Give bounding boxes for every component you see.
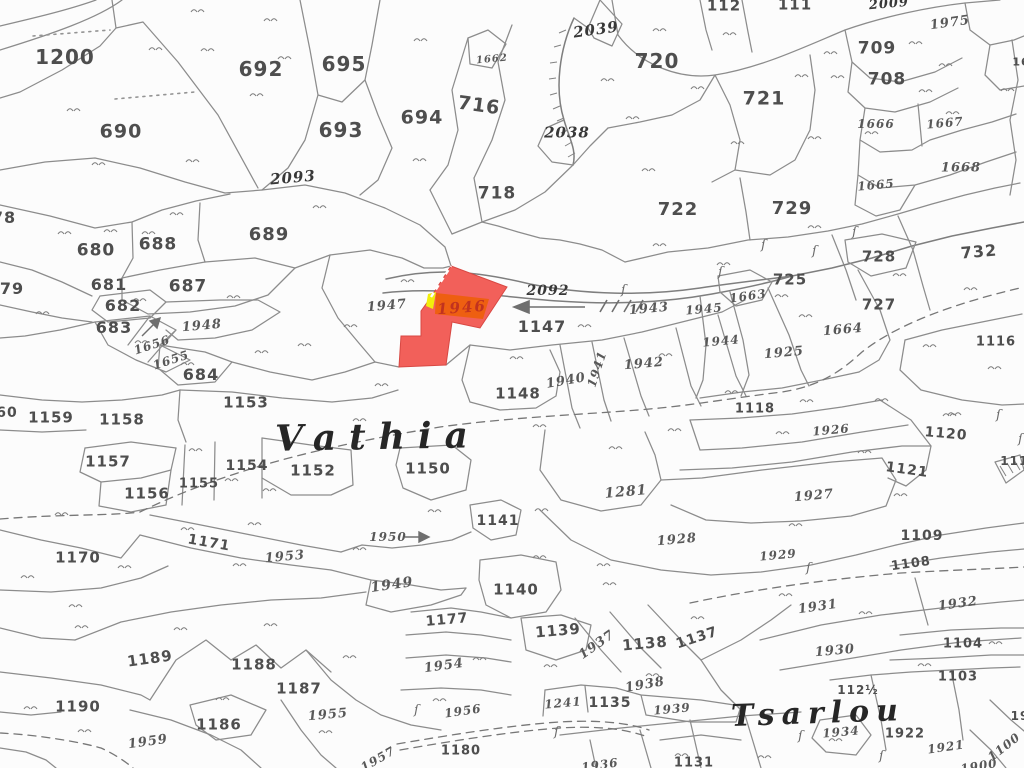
grass-tuft-icon [597,564,610,566]
grass-tuft-icon [646,674,659,676]
spring-mark-icon: ſ [878,749,886,764]
grass-tuft-icon [264,19,277,21]
grass-tuft-icon [909,42,922,44]
grass-tuft-icon [313,206,326,208]
grass-tuft-icon [298,344,311,346]
grass-tuft-icon [653,29,666,31]
grass-tuft-icon [795,75,808,77]
highlighted-parcel-1946[interactable] [399,266,507,367]
grass-tuft-icon [642,169,655,171]
spring-mark-icon: ſ [811,244,819,259]
hachure-ticks [549,30,1020,476]
grass-tuft-icon [865,132,878,134]
grass-tuft-icon [170,213,183,215]
grass-tuft-icon [603,583,616,585]
grass-tuft-icon [544,665,557,667]
grass-tuft-icon [668,429,681,431]
grass-tuft-icon [723,33,736,35]
grass-tuft-icon [227,296,240,298]
grass-tuft-icon [149,48,162,50]
grass-tuft-icon [278,57,291,59]
grass-tuft-icon [731,142,744,144]
grass-tuft-icon [776,432,789,434]
grass-tuft-icon [894,494,907,496]
spring-mark-icon: ſ [760,238,768,253]
grass-tuft-icon [691,617,704,619]
grass-tuft-icon [319,731,332,733]
grass-tuft-icon [989,642,1002,644]
spring-mark-icon: ſ [553,725,561,740]
grass-tuft-icon [118,566,131,568]
grass-tuft-icon [758,756,771,758]
grass-tuft-icon [653,244,666,246]
grass-tuft-icon [24,707,37,709]
grass-tuft-icon [133,299,146,301]
grass-tuft-icon [21,576,34,578]
grass-tuft-icon [428,510,441,512]
grass-tuft-icon [263,489,276,491]
spring-mark-icon: ſ [620,283,628,298]
grass-tuft-icon [189,449,202,451]
grass-tuft-icon [343,656,356,658]
grass-tuft-icon [946,112,959,114]
trail-paths [0,287,1024,768]
spring-mark-icon: ſ [413,703,421,718]
parcel-1656-arrow [142,318,160,336]
grass-tuft-icon [75,626,88,628]
grass-tuft-icon [78,730,91,732]
grass-tuft-icon [919,90,932,92]
grass-tuft-icon [829,739,842,741]
grass-tuft-icon [142,232,155,234]
parcel-1946-polygon[interactable] [399,266,507,367]
spring-mark-symbols: ſſſſſſſſſſſſ [413,225,1024,764]
grass-tuft-icon [800,400,813,402]
spring-mark-icon: ſ [1017,432,1024,447]
grass-tuft-icon [533,425,546,427]
parcel-1950-arrow [405,532,429,542]
grass-tuft-icon [92,163,105,165]
grass-tuft-icon [609,447,622,449]
grass-tuft-icon [510,357,523,359]
grass-tuft-icon [353,419,366,421]
spring-mark-icon: ſ [717,265,725,280]
grass-tuft-icon [414,39,427,41]
grass-tuft-icon [401,280,414,282]
boundary-lines [0,0,1024,768]
grass-tuft-symbols [21,10,1014,758]
spring-mark-icon: ſ [797,729,805,744]
grass-tuft-icon [831,76,844,78]
dotted-boundary-2 [115,92,195,99]
grass-tuft-icon [799,315,812,317]
grass-tuft-icon [824,52,837,54]
grass-tuft-icon [186,160,199,162]
grass-tuft-icon [264,624,277,626]
grass-tuft-icon [375,384,388,386]
grass-tuft-icon [601,79,614,81]
grass-tuft-icon [353,548,366,550]
grass-tuft-icon [893,274,906,276]
grass-tuft-icon [250,94,263,96]
grass-tuft-icon [789,524,802,526]
grass-tuft-icon [859,612,872,614]
grass-tuft-icon [808,137,821,139]
grass-tuft-icon [55,513,68,515]
grass-tuft-icon [201,49,214,51]
grass-tuft-icon [775,295,788,297]
spring-mark-icon: ſ [995,408,1003,423]
grass-tuft-icon [808,226,821,228]
grass-tuft-icon [225,479,238,481]
grass-tuft-icon [691,87,704,89]
grass-tuft-icon [216,698,229,700]
grass-tuft-icon [135,341,148,343]
grass-tuft-icon [923,345,936,347]
grass-tuft-icon [659,354,672,356]
grass-tuft-icon [255,351,268,353]
grass-tuft-icon [413,159,426,161]
grass-tuft-icon [181,528,194,530]
grass-tuft-icon [174,628,187,630]
spring-mark-icon: ſ [805,561,813,576]
grass-tuft-icon [988,367,1001,369]
grass-tuft-icon [248,523,261,525]
grass-tuft-icon [779,594,792,596]
grass-tuft-icon [69,605,82,607]
grass-tuft-icon [191,10,204,12]
grass-tuft-icon [233,564,246,566]
grass-tuft-icon [67,109,80,111]
cadastral-map-canvas[interactable]: ſſſſſſſſſſſſ 120069269569069369471671868… [0,0,1024,768]
grass-tuft-icon [104,230,117,232]
grass-tuft-icon [675,754,688,756]
grass-tuft-icon [578,325,591,327]
grass-tuft-icon [58,232,71,234]
grass-tuft-icon [918,664,931,666]
grass-tuft-icon [964,288,977,290]
parcel-boundary-network: ſſſſſſſſſſſſ [0,0,1024,768]
grass-tuft-icon [626,117,639,119]
grass-tuft-icon [433,699,446,701]
